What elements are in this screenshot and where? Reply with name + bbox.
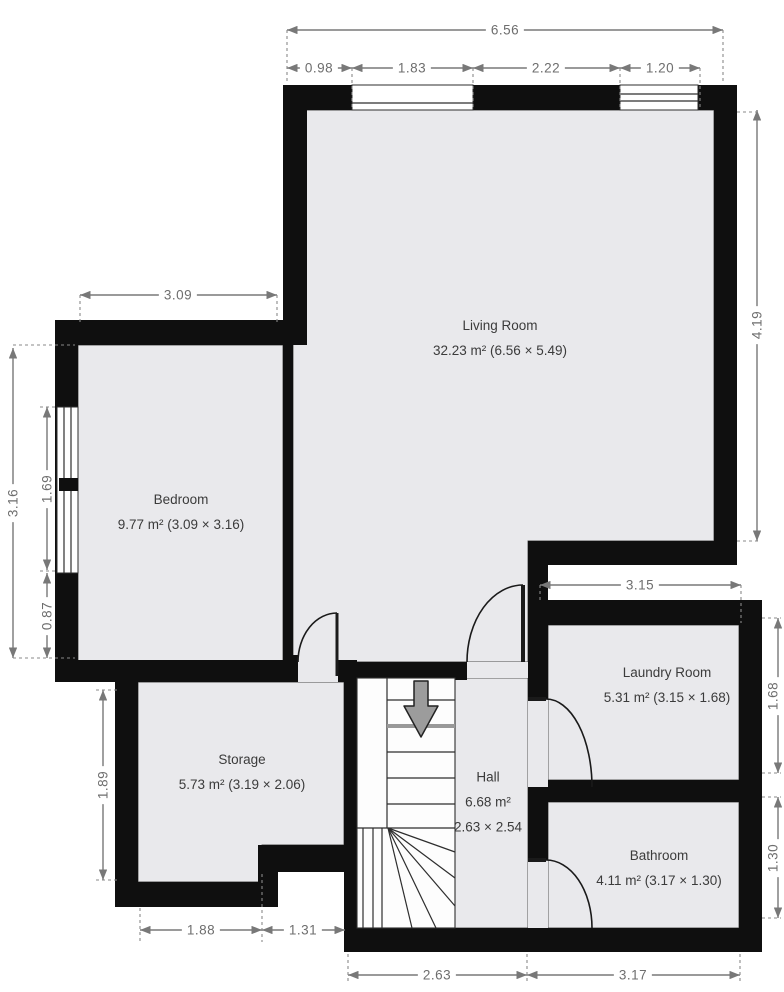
dim-storage-left: 1.89 xyxy=(96,766,111,804)
room-area: 4.11 m² (3.17 × 1.30) xyxy=(596,868,721,893)
dim-bottom-hall: 2.63 xyxy=(418,968,456,983)
wall-laundry-bathroom-divider xyxy=(528,780,740,802)
wall-hall-left xyxy=(344,660,357,952)
wall-living-bottom-right xyxy=(528,541,737,565)
room-name: Living Room xyxy=(433,313,567,338)
staircase xyxy=(357,678,455,928)
dim-bathroom-right: 1.30 xyxy=(766,839,781,877)
room-name: Bedroom xyxy=(118,487,244,512)
room-area: 32.23 m² (6.56 × 5.49) xyxy=(433,338,567,363)
floorplan: Living Room 32.23 m² (6.56 × 5.49) Bedro… xyxy=(0,0,784,992)
storage-label: Storage 5.73 m² (3.19 × 2.06) xyxy=(179,747,305,797)
wall-bedroom-living-divider xyxy=(283,345,293,662)
dim-bottom-laundry: 3.17 xyxy=(614,968,652,983)
dim-bedroom-width: 3.09 xyxy=(159,288,197,303)
hall-label: Hall 6.68 m² 2.63 × 2.54 xyxy=(454,765,522,840)
room-name: Laundry Room xyxy=(604,660,730,685)
room-area: 5.31 m² (3.15 × 1.68) xyxy=(604,685,730,710)
bedroom-label: Bedroom 9.77 m² (3.09 × 3.16) xyxy=(118,487,244,537)
dim-below-window: 0.87 xyxy=(40,597,55,635)
dim-top-seg1: 0.98 xyxy=(300,61,338,76)
living-room-label: Living Room 32.23 m² (6.56 × 5.49) xyxy=(433,313,567,363)
wall-laundry-top xyxy=(528,600,762,625)
dim-top-total: 6.56 xyxy=(486,23,524,38)
dim-laundry-width: 3.15 xyxy=(621,578,659,593)
dim-window-left: 1.69 xyxy=(40,470,55,508)
dim-living-right: 4.19 xyxy=(750,306,765,344)
wall-storage-bottom-right xyxy=(258,845,357,872)
dim-bottom-step: 1.31 xyxy=(284,923,322,938)
wall-living-left-upper xyxy=(283,85,307,345)
wall-hall-top xyxy=(357,662,467,680)
wall-bedroom-bottom xyxy=(55,660,298,682)
dim-laundry-right: 1.68 xyxy=(766,677,781,715)
room-name: Storage xyxy=(179,747,305,772)
wall-bedroom-top xyxy=(55,320,307,345)
dim-bedroom-height: 3.16 xyxy=(6,484,21,522)
room-area: 5.73 m² (3.19 × 2.06) xyxy=(179,772,305,797)
dim-top-seg3: 2.22 xyxy=(527,61,565,76)
wall-laundry-right xyxy=(739,600,762,952)
window-top-right xyxy=(620,85,698,110)
window-top-left xyxy=(352,85,473,110)
wall-bottom xyxy=(344,928,762,952)
dim-top-seg4: 1.20 xyxy=(641,61,679,76)
dim-bottom-storage: 1.88 xyxy=(182,923,220,938)
wall-storage-left xyxy=(115,682,138,907)
room-area: 9.77 m² (3.09 × 3.16) xyxy=(118,512,244,537)
room-area: 6.68 m² xyxy=(454,790,522,815)
room-size: 2.63 × 2.54 xyxy=(454,815,522,840)
dim-top-seg2: 1.83 xyxy=(393,61,431,76)
room-name: Bathroom xyxy=(596,843,721,868)
bathroom-label: Bathroom 4.11 m² (3.17 × 1.30) xyxy=(596,843,721,893)
wall-living-right xyxy=(714,85,737,565)
room-name: Hall xyxy=(454,765,522,790)
window-bedroom xyxy=(57,407,78,573)
laundry-room-label: Laundry Room 5.31 m² (3.15 × 1.68) xyxy=(604,660,730,710)
wall-storage-bottom-left xyxy=(115,882,278,907)
